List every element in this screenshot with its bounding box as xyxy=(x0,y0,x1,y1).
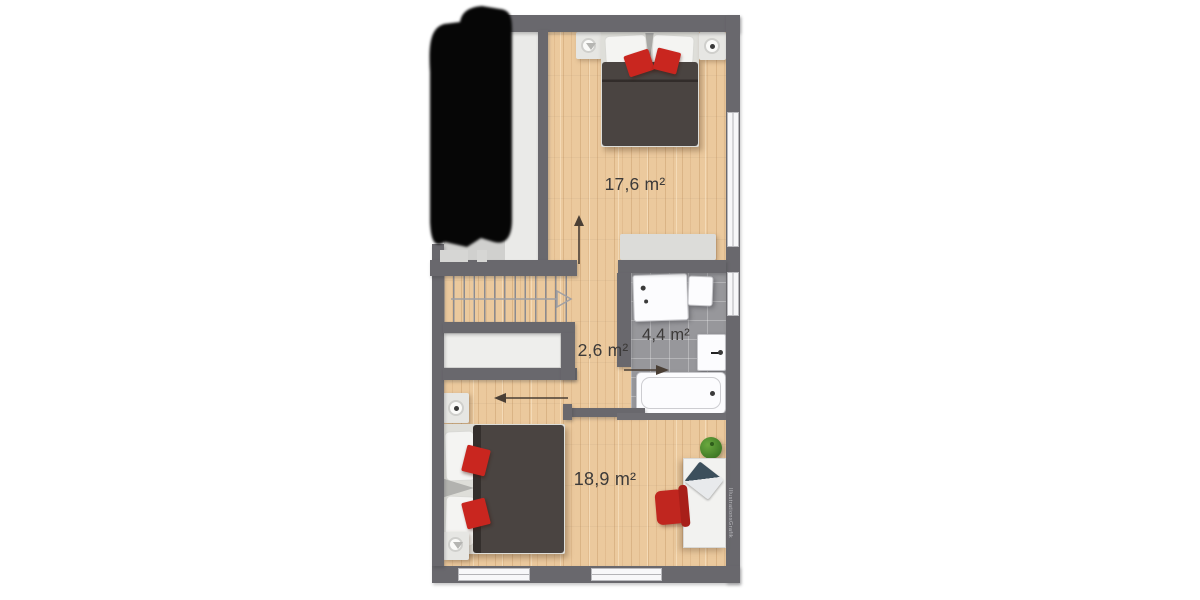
faucet-dot xyxy=(718,350,723,355)
lamp-icon xyxy=(448,537,463,552)
duvet xyxy=(473,425,564,553)
lamp-center xyxy=(710,44,715,49)
wall-top xyxy=(488,15,740,32)
room-label-bathroom: 4,4 m² xyxy=(626,326,706,345)
room-label-bedroom-upper: 17,6 m² xyxy=(590,174,680,195)
door-arrow-bedroom-upper xyxy=(571,214,587,266)
door-arrow-bathroom xyxy=(620,362,672,378)
duvet xyxy=(602,62,698,146)
closet xyxy=(443,333,561,368)
wall-under-stairs xyxy=(443,322,575,333)
page: { "floor_plan": { "rooms": [ { "name": "… xyxy=(0,0,1200,600)
watermark: IllustrationsGrafik xyxy=(727,488,733,558)
wall-bathroom-top xyxy=(618,260,726,273)
lamp-center xyxy=(454,406,459,411)
lamp-shade xyxy=(453,542,463,549)
lamp-icon xyxy=(581,38,596,53)
shower-head xyxy=(641,286,646,291)
bathtub-basin xyxy=(641,377,721,409)
office-chair xyxy=(652,483,692,536)
plant xyxy=(700,437,722,459)
wall-left xyxy=(432,244,444,566)
floor-plan: 17,6 m² 2,6 m² 4,4 m² 18,9 m² Illustrati… xyxy=(430,0,740,600)
shower xyxy=(632,273,689,322)
bathtub xyxy=(636,372,726,414)
laptop xyxy=(684,461,723,499)
wall-hall-top xyxy=(430,260,577,276)
wall-bathroom-bottom xyxy=(617,413,726,420)
plant-leaf-dot xyxy=(710,442,714,446)
window-right-bedroom xyxy=(727,112,739,247)
shower-control xyxy=(644,299,648,303)
nightstand-left xyxy=(576,32,602,59)
stairs-direction-arrow xyxy=(443,276,575,322)
wall-closet-bottom xyxy=(443,368,577,380)
redaction-blob xyxy=(424,2,518,258)
lamp-shade xyxy=(586,43,596,50)
double-bed-upper xyxy=(601,31,699,147)
nightstand-right xyxy=(699,32,726,60)
drain xyxy=(710,391,715,396)
bath-cabinet xyxy=(687,276,713,307)
sideboard xyxy=(620,234,716,260)
lamp-icon xyxy=(448,400,464,416)
nightstand-top xyxy=(443,393,469,423)
lamp-icon xyxy=(704,38,720,54)
stairs-up xyxy=(443,276,575,322)
door-arrow-bedroom-lower xyxy=(492,390,572,406)
window-right-bathroom xyxy=(727,272,739,316)
wall-bedroom-upper-left xyxy=(538,30,548,262)
window-bottom-right xyxy=(591,568,662,581)
window-bottom-left xyxy=(458,568,530,581)
room-label-bedroom-lower: 18,9 m² xyxy=(565,469,645,490)
nightstand-bottom xyxy=(443,532,469,560)
wall-stub xyxy=(563,404,572,420)
